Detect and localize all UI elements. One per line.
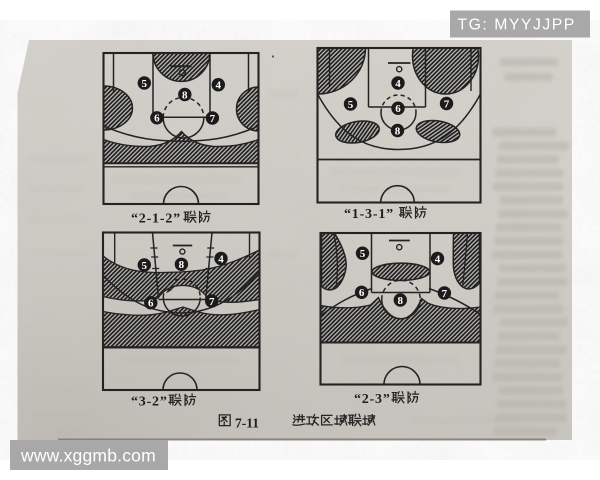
- svg-text:8: 8: [395, 125, 401, 137]
- svg-text:4: 4: [435, 253, 441, 265]
- svg-text:7: 7: [444, 98, 450, 110]
- svg-text:“2-3”: “2-3”: [354, 392, 391, 407]
- svg-text:5: 5: [348, 99, 354, 111]
- svg-text:5: 5: [142, 260, 148, 272]
- svg-text:4: 4: [218, 253, 224, 265]
- svg-text:8: 8: [179, 259, 185, 271]
- svg-text:7: 7: [442, 288, 448, 300]
- svg-text:5: 5: [360, 248, 366, 260]
- svg-text:7-11: 7-11: [235, 416, 259, 431]
- svg-text:“3-2”: “3-2”: [131, 395, 168, 410]
- svg-text:www.xggmb.com: www.xggmb.com: [20, 446, 156, 466]
- svg-text:4: 4: [216, 80, 222, 92]
- svg-text:“1-3-1”: “1-3-1”: [344, 207, 394, 222]
- svg-text:7: 7: [209, 296, 215, 308]
- svg-text:8: 8: [398, 295, 404, 307]
- svg-text:6: 6: [395, 103, 401, 115]
- svg-text:4: 4: [395, 78, 401, 90]
- svg-text:6: 6: [359, 287, 365, 299]
- svg-text:TG: MYYJJPP: TG: MYYJJPP: [458, 17, 576, 34]
- svg-text:5: 5: [142, 78, 148, 90]
- svg-text:6: 6: [148, 298, 154, 310]
- svg-text:6: 6: [154, 113, 160, 125]
- svg-text:8: 8: [182, 89, 188, 101]
- svg-text:“2-1-2”: “2-1-2”: [131, 212, 181, 227]
- svg-text:7: 7: [210, 113, 216, 125]
